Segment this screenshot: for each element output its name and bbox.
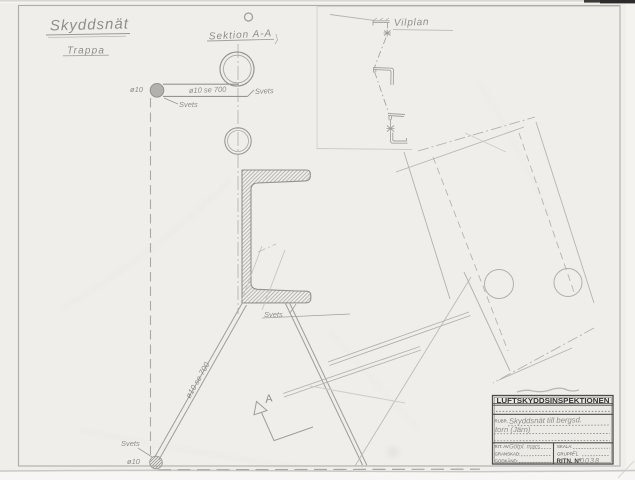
svg-text:Trappa: Trappa — [67, 46, 105, 57]
svg-text:Skyddsnät: Skyddsnät — [50, 15, 129, 34]
svg-text:RIT. AV: RIT. AV — [495, 444, 509, 449]
svg-text:RUBR.: RUBR. — [495, 419, 508, 424]
svg-text:torn (Järn): torn (Järn) — [495, 425, 531, 434]
svg-text:Svets: Svets — [121, 439, 140, 448]
svg-text:SKALA:: SKALA: — [557, 444, 572, 449]
svg-text:Svets: Svets — [264, 310, 283, 319]
svg-text:0038: 0038 — [580, 456, 599, 465]
svg-text:Götpl. mars: Götpl. mars — [509, 444, 540, 450]
svg-text:Svets: Svets — [255, 86, 274, 96]
svg-text:GRANSKAD:: GRANSKAD: — [495, 452, 521, 457]
svg-text:GODKÄND:: GODKÄND: — [495, 459, 518, 464]
svg-text:ø10: ø10 — [127, 457, 141, 466]
svg-text:RITN. Nº: RITN. Nº — [557, 458, 582, 465]
svg-text:Skyddsnät till bergsd.: Skyddsnät till bergsd. — [509, 415, 582, 425]
svg-text:LUFTSKYDDSINSPEKTIONEN: LUFTSKYDDSINSPEKTIONEN — [497, 396, 610, 405]
svg-text:Vilplan: Vilplan — [394, 17, 430, 29]
svg-text:ø10: ø10 — [130, 85, 144, 94]
svg-text:ø10 se 700: ø10 se 700 — [189, 85, 228, 95]
svg-text:Svets: Svets — [179, 100, 198, 109]
